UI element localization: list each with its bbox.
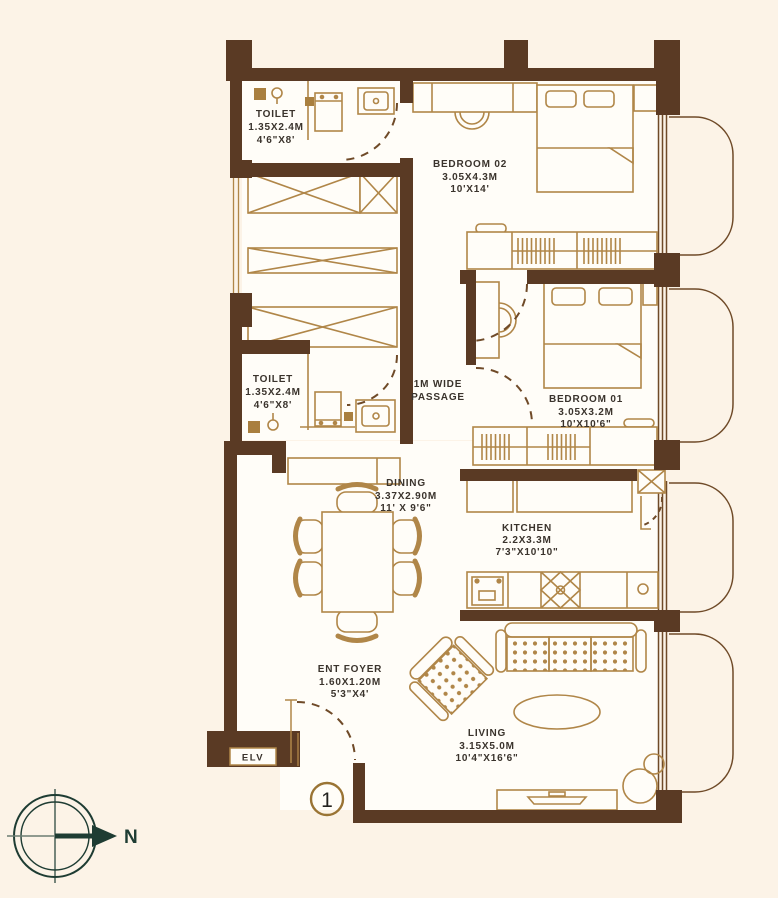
drain-icon bbox=[305, 97, 314, 106]
room-dim-m: 1.35X2.4M bbox=[248, 122, 304, 133]
room-dim-m: 1.35X2.4M bbox=[245, 387, 301, 398]
floor-plan-drawing: ELV TOILET 1.35X2.4M 4'6"X8' BEDROOM 02 … bbox=[0, 0, 778, 898]
room-dim-ft: 4'6"X8' bbox=[257, 135, 295, 146]
room-dim-m: 3.37X2.90M bbox=[375, 491, 437, 502]
elevator-label: ELV bbox=[242, 753, 264, 764]
tv-unit bbox=[497, 790, 617, 810]
unit-number: 1 bbox=[321, 789, 333, 812]
sofa bbox=[496, 623, 646, 672]
room-dim-m: 3.05X4.3M bbox=[442, 172, 498, 183]
room-name: BEDROOM 01 bbox=[549, 394, 623, 405]
room-dim-ft: 10'4"X16'6" bbox=[455, 753, 518, 764]
bedroom01-bed bbox=[544, 282, 657, 388]
coffee-table bbox=[514, 695, 600, 729]
room-name: TOILET bbox=[256, 109, 296, 120]
dining-sideboard bbox=[288, 458, 400, 484]
room-dim-ft: 5'3"X4' bbox=[331, 689, 369, 700]
floor-plan-page: ELV TOILET 1.35X2.4M 4'6"X8' BEDROOM 02 … bbox=[0, 0, 778, 898]
room-name: LIVING bbox=[468, 728, 506, 739]
room-name2: PASSAGE bbox=[411, 392, 465, 403]
room-dim-m: 1.60X1.20M bbox=[319, 677, 381, 688]
room-dim-ft: 4'6"X8' bbox=[254, 400, 292, 411]
drain-icon bbox=[344, 412, 353, 421]
room-dim-ft: 7'3"X10'10" bbox=[495, 547, 558, 558]
room-dim-m: 3.15X5.0M bbox=[459, 741, 515, 752]
service-duct bbox=[638, 470, 665, 493]
room-dim-m: 3.05X3.2M bbox=[558, 407, 614, 418]
room-dim-ft: 10'X10'6" bbox=[560, 419, 611, 430]
storage-loft-units bbox=[248, 173, 397, 347]
room-name: DINING bbox=[386, 478, 426, 489]
compass-north-label: N bbox=[124, 827, 139, 848]
room-name: ENT FOYER bbox=[318, 664, 382, 675]
room-name: KITCHEN bbox=[502, 523, 552, 534]
room-label-kitchen: KITCHEN 2.2X3.3M 7'3"X10'10" bbox=[495, 523, 558, 558]
room-dim-ft: 11' X 9'6" bbox=[380, 503, 431, 514]
dining-table bbox=[322, 512, 393, 612]
room-dim-m: 2.2X3.3M bbox=[502, 535, 551, 546]
room-name: TOILET bbox=[253, 374, 293, 385]
room-dim-ft: 10'X14' bbox=[450, 184, 489, 195]
room-name: BEDROOM 02 bbox=[433, 159, 507, 170]
room-name: 1M WIDE bbox=[414, 379, 462, 390]
